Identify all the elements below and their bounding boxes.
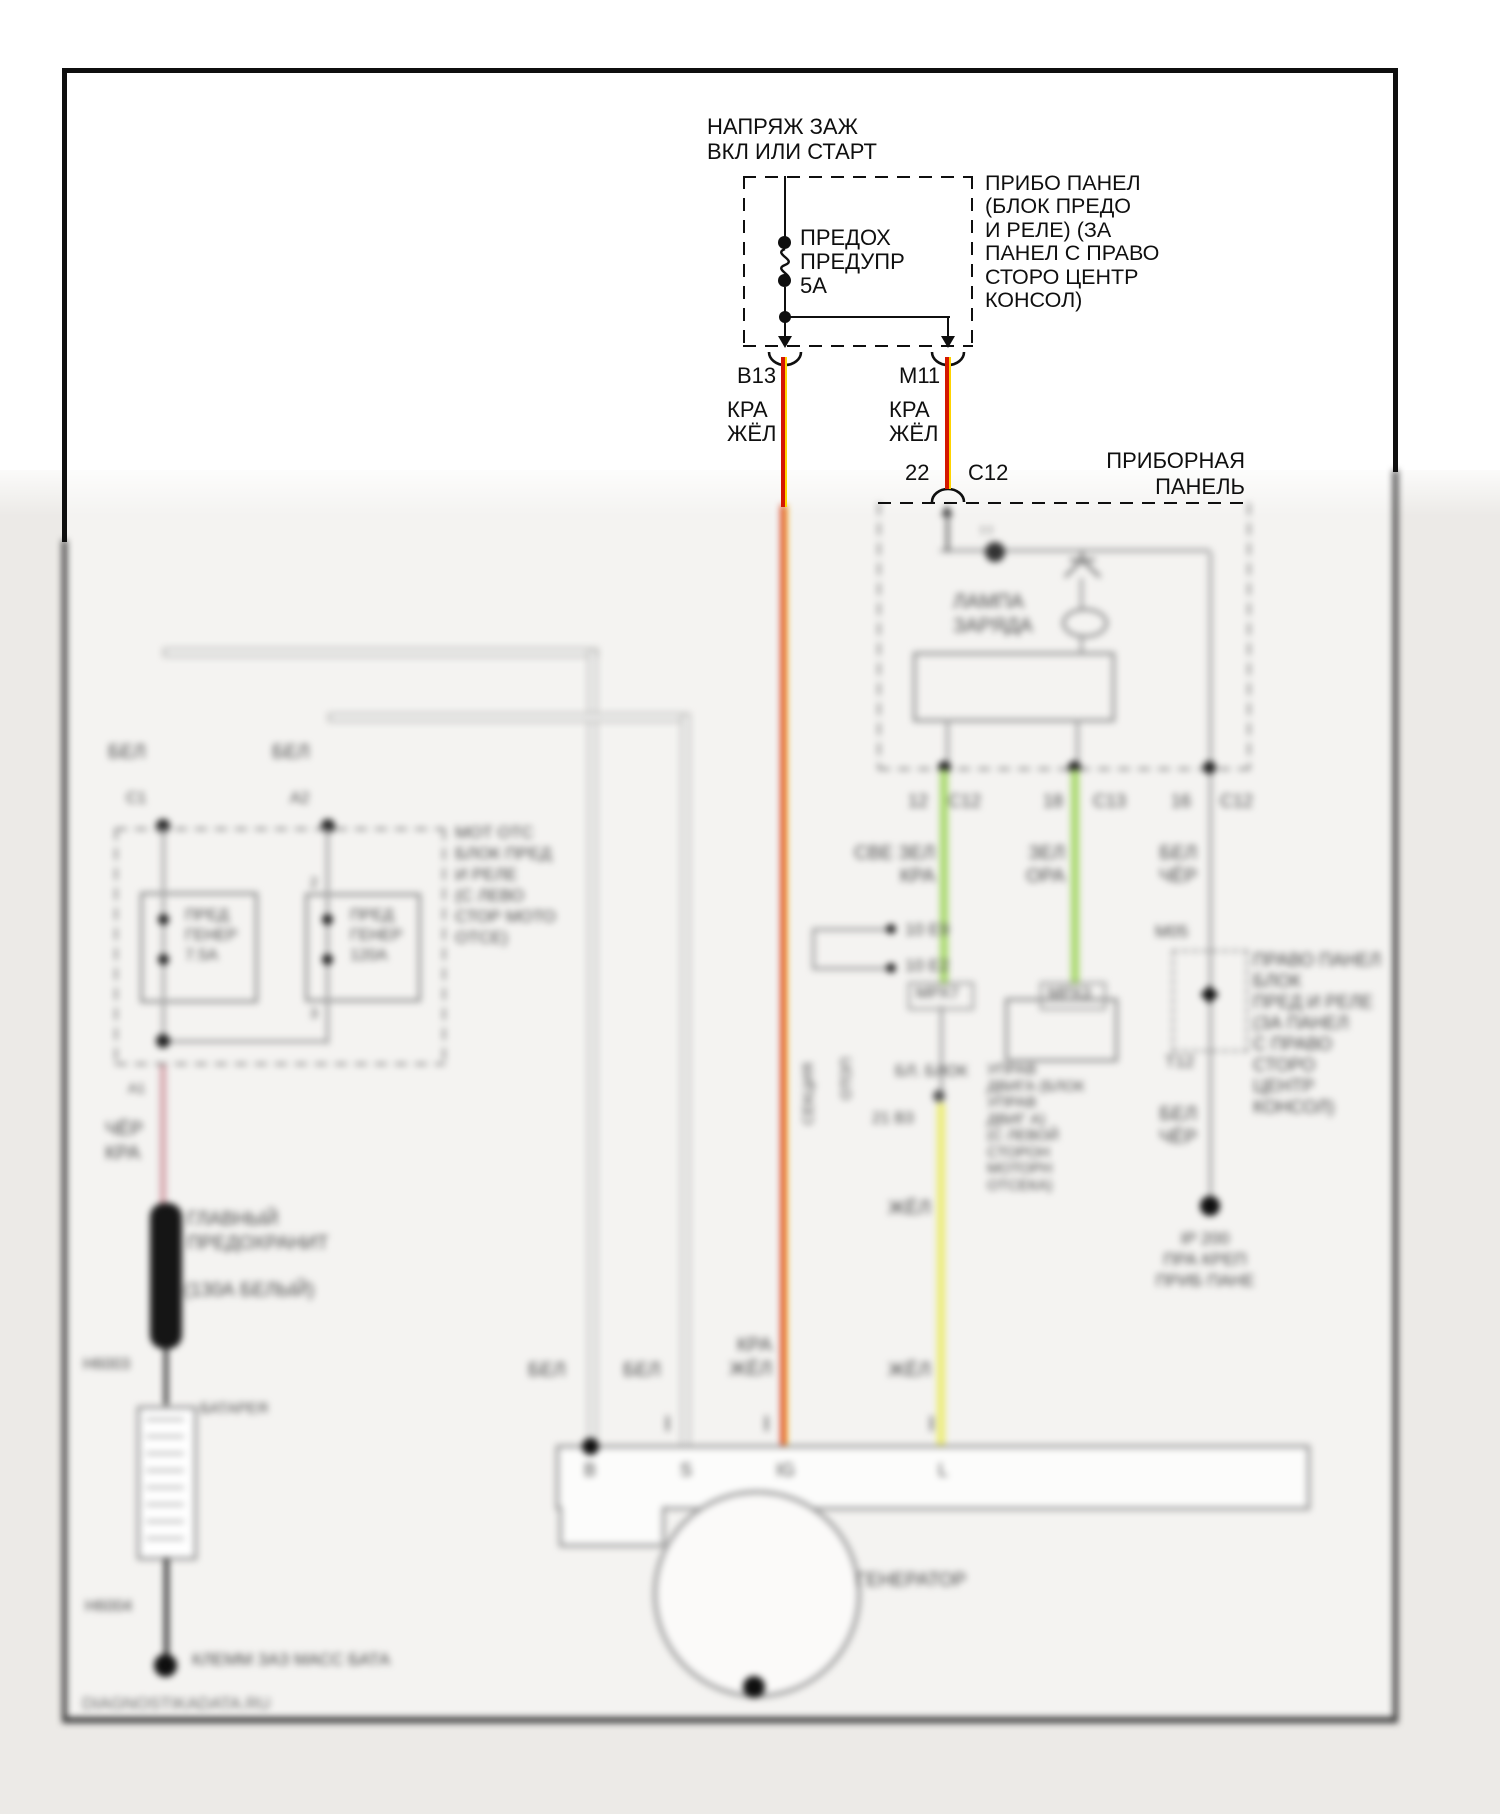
- jumper-h1: [812, 928, 890, 931]
- zhel-label-bottom: ЖЁЛ: [888, 1360, 931, 1382]
- main-fuse-body: [150, 1203, 182, 1349]
- battery-ground-wire: [164, 1558, 169, 1660]
- engine-box-right: [443, 828, 445, 1065]
- bel-label-left: БЕЛ: [108, 742, 146, 764]
- fuse1-dot-bottom: [158, 954, 169, 965]
- main-fuse-label: ГЛАВНЫЙПРЕДОХРАНИТ: [187, 1208, 329, 1256]
- generator-circle: [653, 1490, 861, 1698]
- white-wire-b-v: [588, 648, 597, 1449]
- mrx7-down-wire: [940, 1006, 943, 1098]
- battery-plates: [146, 1418, 184, 1540]
- panel-box-left: [878, 503, 880, 770]
- panel-conn-c13: С13: [1093, 791, 1126, 812]
- panel-title: ПРИБОРНАЯПАНЕЛЬ: [945, 448, 1245, 500]
- green2-color-label: ЗЕЛОРА: [1010, 842, 1065, 888]
- charge-lamp-blob: [985, 542, 1005, 562]
- frame-left-blurred: [62, 540, 67, 1723]
- wire-b13-color-label: КРАЖЁЛ: [727, 398, 776, 446]
- jumper-pin2: 10 Е2: [905, 956, 949, 976]
- pin-tick-1: [666, 1416, 669, 1431]
- panel-pin-18: 18: [1043, 791, 1063, 812]
- lamp-wire-v: [946, 516, 949, 552]
- fuse2-wire: [326, 828, 329, 1044]
- wire-m11-color-label: КРАЖЁЛ: [889, 398, 938, 446]
- fuse1-dot-top: [158, 914, 169, 925]
- m05-label: М05: [1155, 922, 1188, 942]
- generator-strip-tab: [559, 1505, 665, 1547]
- green-wire-2: [1071, 770, 1079, 985]
- fuse2-dot-bottom: [322, 954, 333, 965]
- h6004-label: Н6004: [85, 1598, 132, 1616]
- yellow-pin-label: 21 В3: [872, 1110, 914, 1128]
- gen-pin-s: S: [680, 1460, 692, 1481]
- bel-label-right: БЕЛ: [272, 742, 310, 764]
- pin3-label: 3: [310, 1005, 318, 1021]
- black-red-label: ЧЁРКРА: [105, 1118, 143, 1166]
- green-wire-1: [940, 770, 948, 985]
- pin-a1-label: А1: [128, 1080, 145, 1096]
- watermark: DIAGNOSTIKADATA.RU: [82, 1694, 270, 1714]
- fuse1-wire: [162, 828, 165, 1042]
- lamp-ellipse: [1062, 608, 1108, 638]
- jumper-pin1: 10 Е9: [905, 920, 949, 940]
- pin-tick-2: [765, 1416, 768, 1431]
- battery-ground-dot: [154, 1654, 177, 1677]
- fuse-join-h: [162, 1040, 329, 1043]
- main-fuse-rating: (130А БЕЛЫЙ): [184, 1280, 314, 1302]
- fuse-gen2-label: ПРЕДГЕНЕР120А: [350, 906, 402, 966]
- zhel-label-top: ЖЁЛ: [888, 1198, 931, 1220]
- ecm-note: УПРАВДВИГА (БЛОКУПРАВДВИГ А)(С ЛЕВОЙСТОР…: [987, 1062, 1084, 1194]
- lamp-arrows-icon: ↑↑: [979, 522, 994, 539]
- white-wire-s-h: [328, 713, 690, 722]
- b-terminal-blob: [582, 1438, 599, 1455]
- main-fuse-stub: [164, 1347, 168, 1405]
- conn-a2-label: А2: [290, 790, 310, 808]
- wiring-diagram-page: { "diagram": { "power_title": ["НАПРЯЖ З…: [0, 0, 1500, 1814]
- panel-conn-c12b: С12: [1220, 791, 1253, 812]
- green1-color-label: СВЕ ЗЕЛКРА: [840, 842, 935, 888]
- white-wire-b-h: [163, 648, 598, 657]
- frame-bottom-blurred: [62, 1717, 1398, 1723]
- yellow-conn-blob: [933, 1090, 945, 1102]
- panel-regulator-box: [913, 652, 1115, 722]
- pin-m11-label: M11: [899, 363, 940, 389]
- right-panel-note: ПРАВО ПАНЕЛБЛОКПРЕД И РЕЛЕ(ЗА ПАНЕЛС ПРА…: [1253, 950, 1381, 1118]
- panel-pin-12: 12: [908, 791, 928, 812]
- generator-ground-dot: [743, 1676, 765, 1698]
- panel-conn-c12a: С12: [948, 791, 981, 812]
- panel-pin-16: 16: [1171, 791, 1191, 812]
- conn-c1-label: С1: [126, 790, 146, 808]
- wire-b13-red-yellow: [781, 357, 787, 507]
- fuse-gen1-label: ПРЕДГЕНЕР7.5А: [185, 906, 237, 966]
- jumper-dot2: [886, 963, 896, 973]
- section-vertical-label2: ОТОП: [838, 1010, 855, 1100]
- charge-lamp-label: ЛАМПАЗАРЯДА: [953, 590, 1033, 638]
- orange-wire-blurred: [781, 505, 787, 1449]
- pin2-label: 2: [310, 874, 318, 890]
- conn-blob-3: [1203, 761, 1216, 774]
- gray-wire-right-v: [1209, 552, 1212, 1202]
- ellipse-wire: [1080, 578, 1083, 608]
- engine-box-note: МОТ ОТСБЛОК ПРЕДИ РЕЛЕ(С ЛЕВОСТОР МОТООТ…: [455, 822, 556, 948]
- generator-label: ГЕНЕРАТОР: [856, 1570, 966, 1592]
- transistor-icon: [1055, 545, 1115, 590]
- panel-box-right: [1248, 503, 1250, 770]
- fuse-join-dot: [156, 1034, 170, 1048]
- jumper-h2: [812, 967, 890, 970]
- jumper-v: [812, 928, 815, 970]
- battery-ground-label: КЛЕММ ЗАЗ МАСС БАТА: [192, 1650, 390, 1670]
- gen-pin-b: B: [584, 1460, 596, 1481]
- ip-ground-label: IP 200ПРА КРЕППРИБ ПАНЕ: [1150, 1228, 1260, 1291]
- engine-box-left: [115, 828, 117, 1065]
- frame-right-blurred: [1393, 470, 1398, 1723]
- gray-color-label-bottom: БЕЛЧЁР: [1145, 1103, 1197, 1149]
- yellow-wire: [937, 1103, 945, 1449]
- section-vertical-label: СЕКЦИЯ: [800, 995, 817, 1125]
- jumper-dot1: [886, 924, 896, 934]
- ellipse-wire2: [1080, 634, 1083, 654]
- strip-bel2: БЕЛ: [623, 1360, 661, 1382]
- panel-box-bottom: [878, 768, 1250, 770]
- panel-box-top: [878, 502, 1250, 504]
- relay-block-box: [1005, 998, 1118, 1062]
- block-label: БЛ. БЛОК: [895, 1063, 968, 1081]
- gen-pin-l: L: [938, 1460, 948, 1481]
- battery-label: БАТАРЕЯ: [200, 1400, 268, 1417]
- pink-wire: [160, 1065, 166, 1207]
- gray-color-label-top: БЕЛЧЁР: [1145, 842, 1197, 888]
- pin-b13-label: B13: [737, 363, 776, 389]
- white-wire-s-v: [681, 713, 690, 1449]
- panel-pin-22: 22: [905, 460, 929, 486]
- pin-tick-3: [930, 1416, 933, 1431]
- fuse2-dot-top: [322, 914, 333, 925]
- strip-bel1: БЕЛ: [528, 1360, 566, 1382]
- strip-kra-zhel-label: КРАЖЁЛ: [722, 1334, 772, 1382]
- h6003-label: Н6003: [83, 1356, 130, 1374]
- mrx7-label: МРХ7: [916, 985, 959, 1003]
- generator-strip: [556, 1445, 1310, 1510]
- ip-ground-dot: [1200, 1196, 1220, 1216]
- t12-label: Т12: [1165, 1052, 1194, 1072]
- gen-pin-ig: IG: [776, 1460, 795, 1481]
